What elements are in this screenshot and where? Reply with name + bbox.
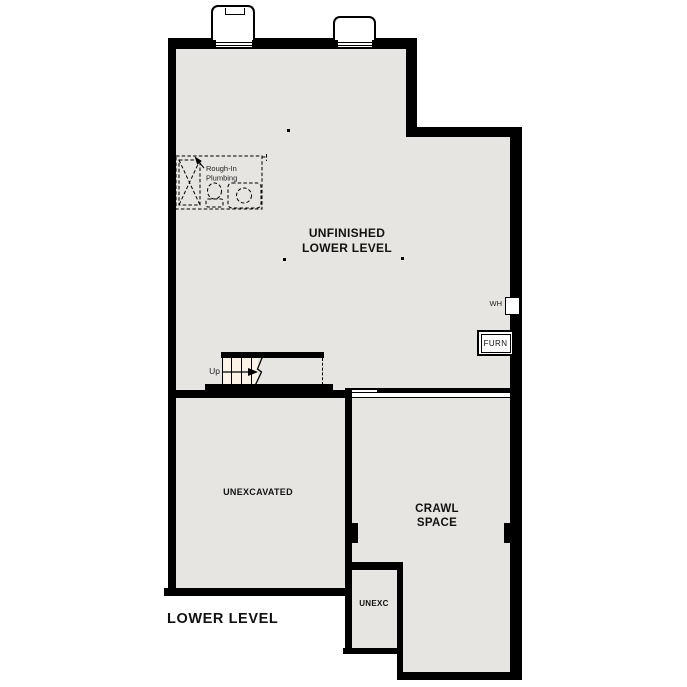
wall-unexcavated-bottom [164,588,352,596]
unexc-label: UNEXC [349,599,399,608]
pilaster-left [352,523,358,543]
furnace-label: FURN [484,339,508,348]
egress-window-right-icon [338,40,372,47]
wall-right [510,127,522,680]
window-well-right [333,16,376,40]
egress-window-left-icon [216,40,252,47]
wall-unexc-top [345,562,403,570]
crawl-top-thin-line [352,397,510,399]
wall-divider [168,390,352,398]
unexcavated-label: UNEXCAVATED [188,487,328,497]
plan-title: LOWER LEVEL [167,611,367,627]
wall-notch [406,127,522,137]
rough-in-plumbing-group: Rough-In Plumbing [170,150,274,214]
furnace-icon: FURN [477,330,514,356]
wall-crawl-bottom [398,672,522,680]
window-well-left-step [225,8,245,15]
wall-unexc-right [397,562,403,680]
wall-right-upper [406,38,417,137]
support-post-dot [287,129,290,132]
pilaster-right [504,523,510,543]
toilet-icon [208,183,222,199]
support-post-dot [401,257,404,260]
wall-stair-top [221,352,324,358]
water-heater-icon [505,297,520,315]
wall-top [168,38,417,49]
wall-left [168,38,176,596]
stair-landing-dashed-line [322,358,323,385]
main-room-label: UNFINISHED LOWER LEVEL [267,226,427,256]
plumbing-note-line1: Rough-In [206,164,237,173]
support-post-dot [283,258,286,261]
stairs-up-label: Up [196,366,220,376]
plumbing-note-line2: Plumbing [206,174,237,183]
wall-unexc-bottom [343,648,403,654]
floor-plan: Up Rough-In Plumbing [0,0,687,687]
stair-break-line-icon [0,0,687,687]
crawl-space-label: CRAWL SPACE [377,502,497,530]
sink-icon [228,183,261,208]
water-heater-label: WH [468,299,502,308]
crawl-access-opening [352,390,377,392]
